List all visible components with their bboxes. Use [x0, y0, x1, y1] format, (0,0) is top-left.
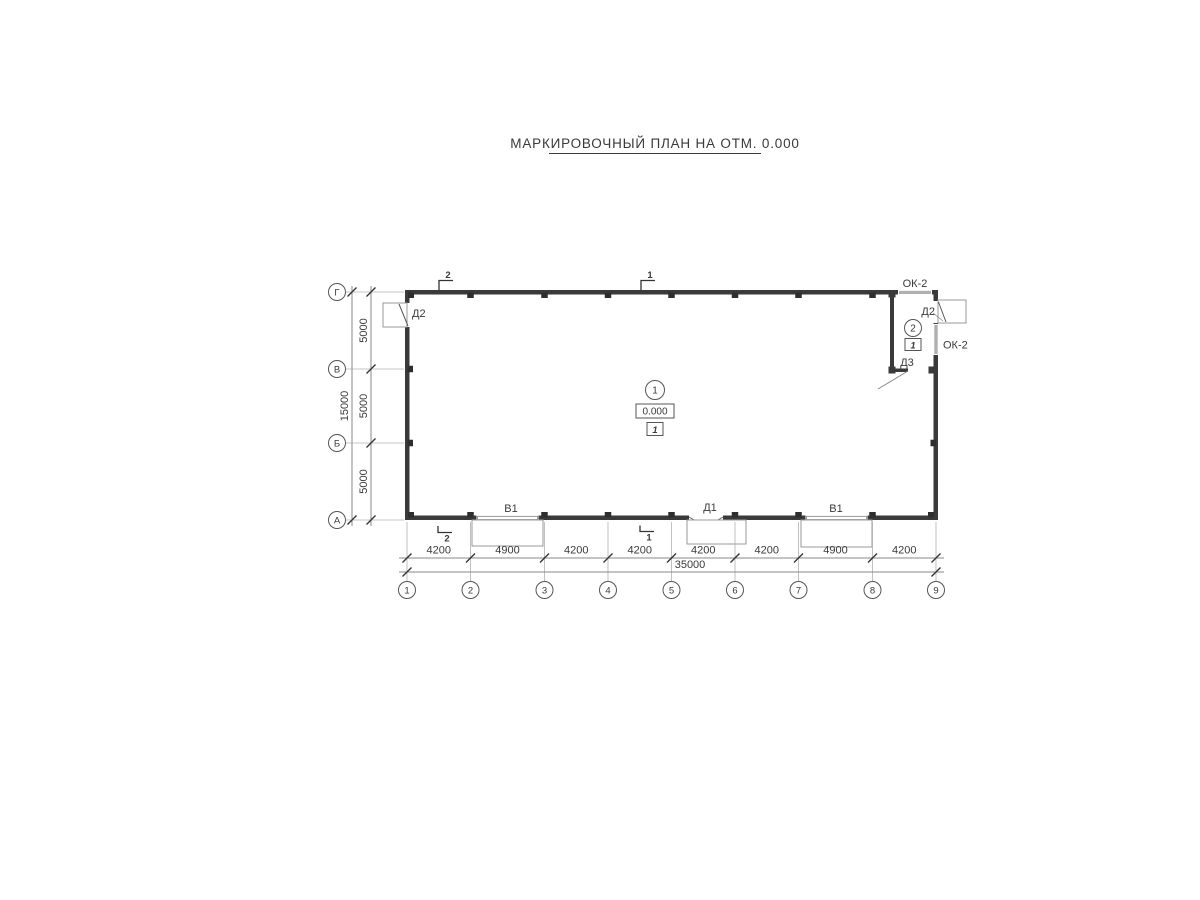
section-marks — [438, 281, 655, 533]
room2-column-bottom — [889, 367, 896, 374]
door-d3-label: Д3 — [900, 357, 914, 369]
dimension-label: 5000 — [358, 318, 370, 342]
grid-axis-6: 6 — [727, 582, 744, 599]
room1-number: 1 — [652, 386, 658, 397]
column-mark — [605, 512, 612, 518]
column-mark — [931, 440, 937, 447]
room2-column-top — [889, 292, 896, 298]
door-d2-right-label: Д2 — [921, 306, 935, 318]
opening-labels: Д2 Д2 ОК-2 ОК-2 Д3 В1 Д1 В1 — [412, 278, 968, 515]
grid-axis-5: 5 — [663, 582, 680, 599]
room1-marker: 1 0.000 1 — [636, 381, 674, 436]
floor-plan-drawing: МАРКИРОВОЧНЫЙ ПЛАН НА ОТМ. 0.000 — [0, 0, 1200, 900]
section-mark-label: 1 — [646, 533, 652, 544]
porches — [383, 300, 966, 547]
left-dimension-labels: 5000 5000 5000 15000 — [339, 318, 370, 493]
dimension-total-label: 35000 — [675, 559, 706, 571]
gate-v1-left-label: В1 — [504, 503, 517, 515]
dimension-label: 4900 — [495, 545, 519, 557]
column-mark — [869, 512, 876, 518]
section-mark-label: 1 — [647, 270, 653, 281]
window-ok2-right-label: ОК-2 — [943, 340, 968, 352]
grid-axis-v: В — [329, 361, 346, 378]
column-mark — [467, 293, 474, 299]
dimension-total-label: 15000 — [339, 391, 351, 422]
dimension-label: 5000 — [358, 469, 370, 493]
section-mark-bottom-left — [438, 526, 452, 533]
column-mark — [668, 293, 675, 299]
column-mark — [408, 440, 414, 447]
dimension-label: 4200 — [628, 545, 652, 557]
room1-finish-mark: 1 — [652, 425, 657, 436]
grid-axis-a: А — [329, 512, 346, 529]
axis-label: Б — [334, 439, 340, 450]
dimension-label: 5000 — [358, 394, 370, 418]
porch-d1 — [687, 520, 746, 544]
dimension-label: 4200 — [691, 545, 715, 557]
room2-finish-mark: 1 — [910, 341, 915, 352]
grid-axis-4: 4 — [600, 582, 617, 599]
column-mark — [869, 293, 876, 299]
section-mark-label: 2 — [444, 534, 449, 545]
door-d1-label: Д1 — [703, 502, 717, 514]
corner-column-mark — [408, 293, 414, 299]
axis-label: 5 — [669, 586, 674, 597]
dock-v1-right — [801, 520, 872, 547]
drawing-title-block: МАРКИРОВОЧНЫЙ ПЛАН НА ОТМ. 0.000 — [510, 136, 799, 154]
drawing-canvas: МАРКИРОВОЧНЫЙ ПЛАН НА ОТМ. 0.000 — [0, 0, 1200, 900]
corner-column-mark — [408, 512, 414, 518]
axis-label: 9 — [933, 586, 938, 597]
grid-axis-b: Б — [329, 435, 346, 452]
column-mark — [541, 512, 548, 518]
column-mark — [408, 366, 414, 373]
axis-label: В — [334, 365, 340, 376]
grid-axis-7: 7 — [790, 582, 807, 599]
room1-elevation: 0.000 — [642, 407, 667, 418]
grid-axis-3: 3 — [536, 582, 553, 599]
room2-column-corner — [929, 367, 935, 374]
section-mark-top-right — [641, 281, 655, 291]
section-mark-bottom-right — [640, 526, 654, 532]
column-mark — [605, 293, 612, 299]
grid-axis-2: 2 — [462, 582, 479, 599]
column-mark — [668, 512, 675, 518]
column-mark — [795, 293, 802, 299]
dimension-label: 4200 — [427, 545, 451, 557]
dock-v1-left — [472, 520, 543, 546]
dimension-label: 4200 — [892, 545, 916, 557]
room2-number: 2 — [910, 324, 916, 335]
page-title: МАРКИРОВОЧНЫЙ ПЛАН НА ОТМ. 0.000 — [510, 136, 799, 151]
axis-label: 4 — [605, 586, 610, 597]
grid-axis-1: 1 — [399, 582, 416, 599]
section-mark-label: 2 — [445, 270, 450, 281]
bottom-axis-bubbles: 1 2 3 4 5 6 7 8 — [399, 582, 945, 599]
room2-wall-left — [890, 294, 894, 372]
dimension-label: 4900 — [823, 545, 847, 557]
column-mark — [541, 293, 548, 299]
column-mark — [732, 293, 739, 299]
grid-axis-8: 8 — [864, 582, 881, 599]
door-d2-left-label: Д2 — [412, 308, 426, 320]
axis-label: А — [334, 516, 341, 527]
axis-label: Г — [334, 288, 339, 299]
column-mark — [795, 512, 802, 518]
window-ok2-right-glazing — [934, 325, 937, 354]
axis-label: 2 — [468, 586, 473, 597]
section-mark-labels: 2 1 2 1 — [444, 270, 653, 545]
column-mark — [732, 512, 739, 518]
door-d3-swing — [878, 371, 908, 389]
dimension-label: 4200 — [755, 545, 779, 557]
window-ok2-top-label: ОК-2 — [903, 278, 928, 290]
section-mark-top-left — [439, 281, 453, 291]
axis-label: 7 — [796, 586, 801, 597]
axis-label: 3 — [542, 586, 547, 597]
axis-label: 1 — [404, 586, 409, 597]
grid-axis-g: Г — [329, 284, 346, 301]
axis-label: 6 — [732, 586, 737, 597]
dimension-label: 4200 — [564, 545, 588, 557]
gate-v1-right-label: В1 — [829, 503, 842, 515]
column-mark — [467, 512, 474, 518]
axis-label: 8 — [870, 586, 875, 597]
corner-column-mark — [928, 512, 934, 518]
room2-marker: 2 1 — [905, 320, 922, 352]
grid-axis-9: 9 — [928, 582, 945, 599]
window-ok2-top-glazing — [899, 291, 931, 294]
